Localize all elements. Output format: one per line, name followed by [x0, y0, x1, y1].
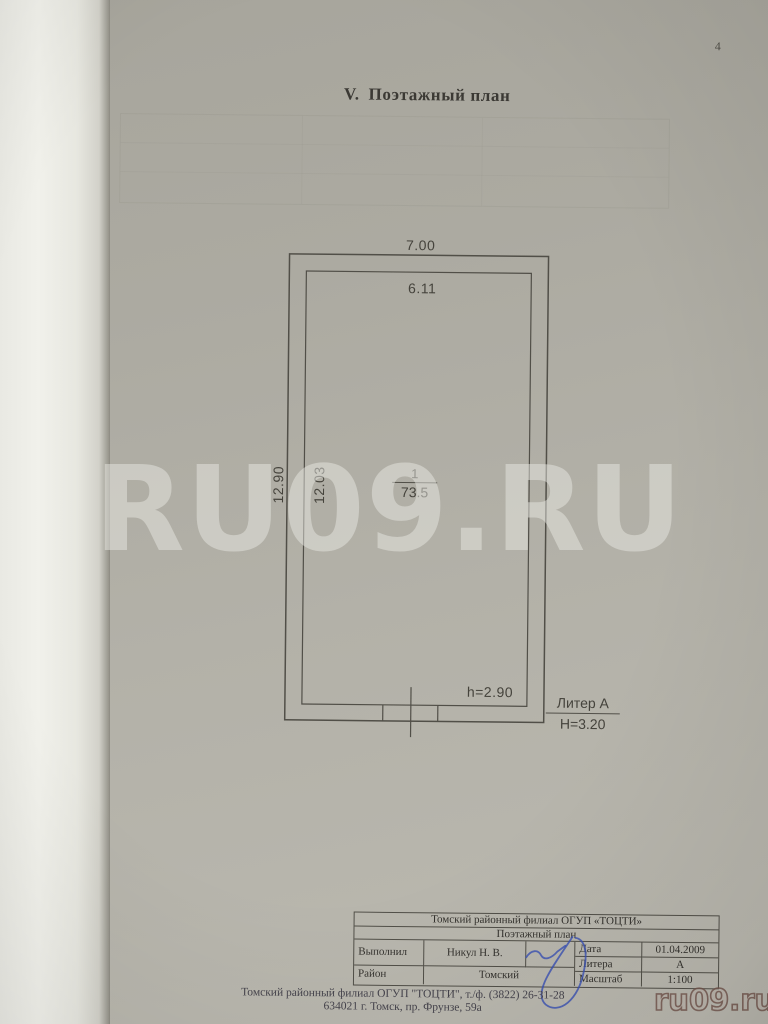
photo-vignette [0, 0, 768, 1024]
document-photo: 4 V. Поэтажный план 7.00 6.11 12.90 12.0… [0, 0, 768, 1024]
